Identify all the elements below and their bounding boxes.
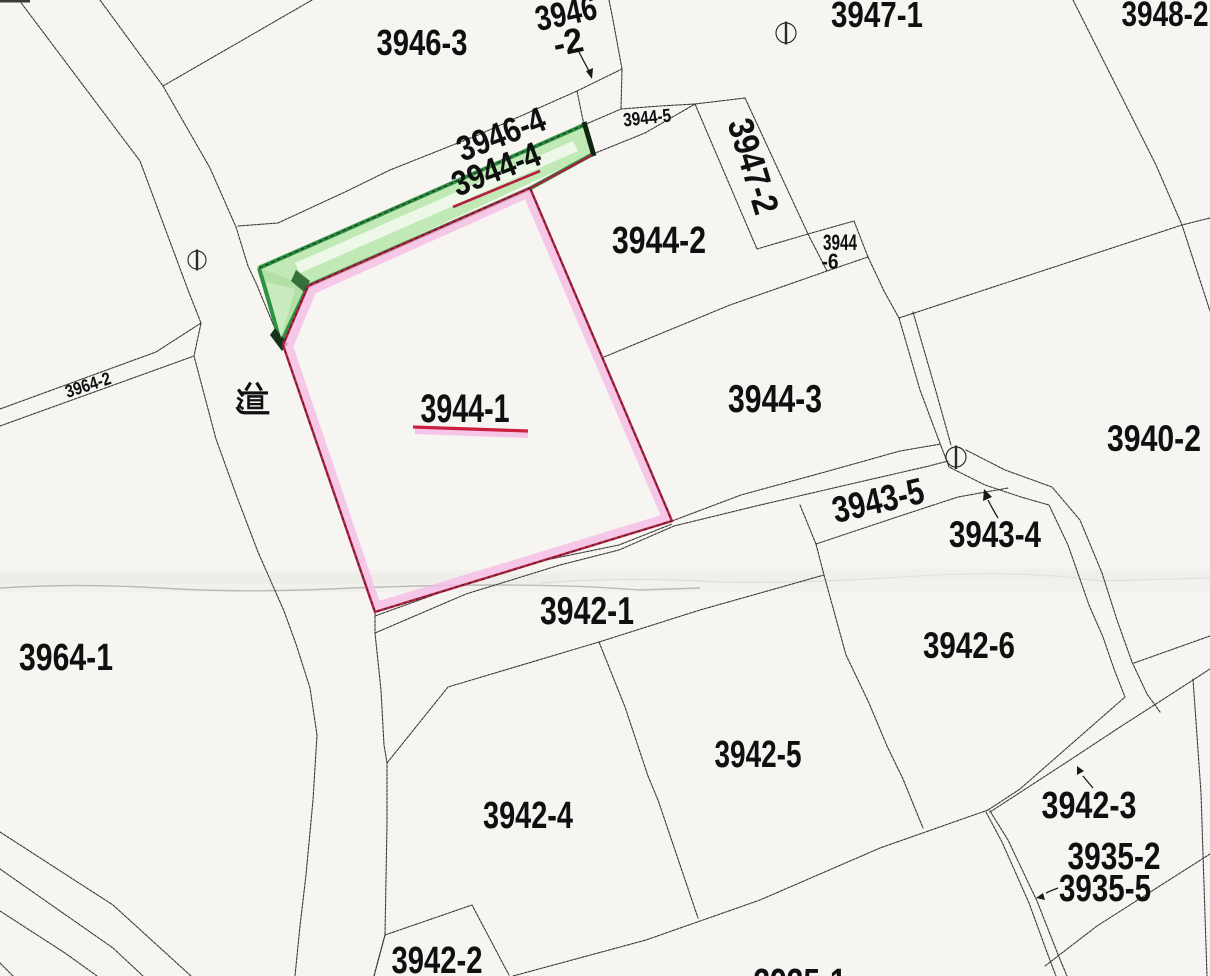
svg-text:3944-1: 3944-1	[421, 387, 510, 431]
svg-text:3947-1: 3947-1	[831, 0, 923, 35]
svg-text:3935-5: 3935-5	[1059, 868, 1151, 910]
svg-text:3942-3: 3942-3	[1042, 785, 1137, 827]
svg-text:3942-6: 3942-6	[923, 625, 1015, 666]
svg-text:3944-2: 3944-2	[612, 220, 706, 262]
svg-text:3942-5: 3942-5	[715, 734, 802, 776]
svg-text:3935-1: 3935-1	[754, 962, 847, 976]
svg-text:3940-2: 3940-2	[1107, 418, 1201, 459]
svg-text:3964-1: 3964-1	[19, 637, 113, 679]
svg-text:3943-4: 3943-4	[949, 514, 1041, 555]
svg-text:3948-2: 3948-2	[1122, 0, 1209, 34]
svg-text:3942-1: 3942-1	[540, 590, 634, 633]
svg-text:-6: -6	[822, 249, 839, 274]
svg-text:3942-2: 3942-2	[392, 940, 483, 976]
svg-text:3944-3: 3944-3	[728, 378, 822, 421]
svg-text:3946-3: 3946-3	[377, 22, 468, 63]
svg-text:3942-4: 3942-4	[483, 795, 573, 837]
